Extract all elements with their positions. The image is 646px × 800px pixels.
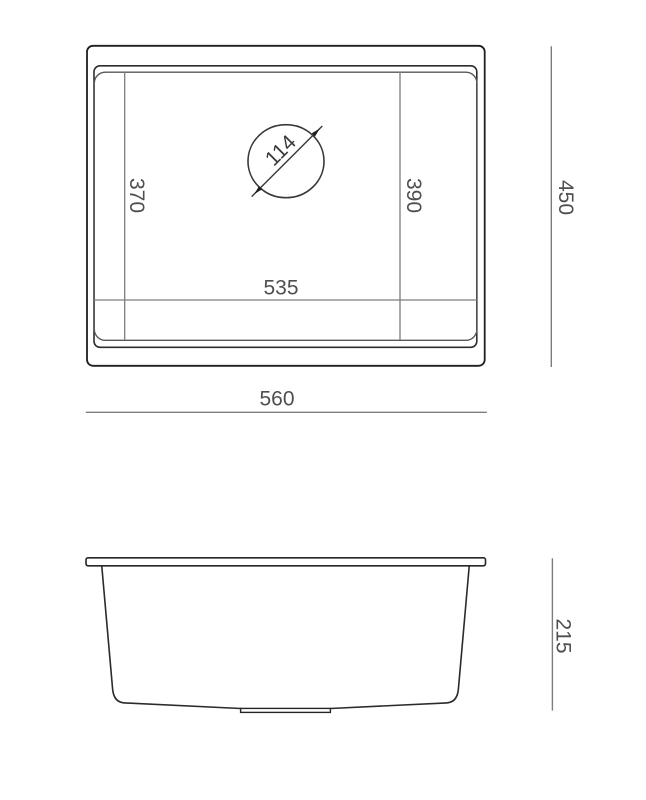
svg-text:450: 450 <box>554 180 577 215</box>
svg-text:370: 370 <box>125 178 148 213</box>
svg-text:114: 114 <box>261 131 301 171</box>
svg-text:215: 215 <box>551 618 574 653</box>
svg-text:560: 560 <box>259 387 294 410</box>
svg-text:535: 535 <box>263 276 298 299</box>
svg-text:390: 390 <box>402 178 425 213</box>
